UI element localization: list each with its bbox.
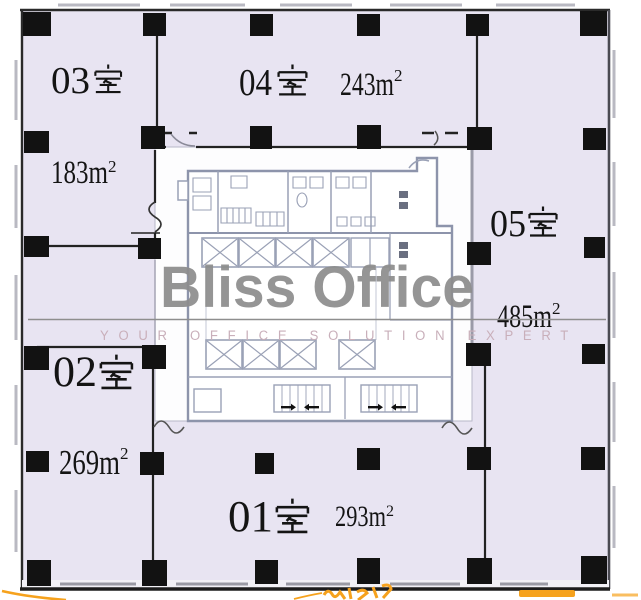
svg-text:02: 02 (53, 349, 97, 396)
svg-text:2: 2 (120, 444, 129, 463)
svg-text:03: 03 (51, 60, 90, 102)
svg-text:2: 2 (394, 66, 403, 85)
svg-text:183m: 183m (51, 155, 108, 191)
svg-text:YOUR OFFICE SOLUTION EXPERT: YOUR OFFICE SOLUTION EXPERT (100, 328, 578, 343)
svg-text:Bliss Office: Bliss Office (160, 255, 474, 320)
svg-text:2: 2 (386, 503, 394, 520)
svg-text:2: 2 (108, 157, 117, 176)
svg-text:04: 04 (239, 62, 272, 104)
svg-text:2: 2 (552, 299, 561, 318)
svg-text:05: 05 (490, 203, 526, 245)
svg-text:01: 01 (228, 492, 273, 541)
svg-text:293m: 293m (335, 500, 386, 533)
svg-text:269m: 269m (59, 443, 120, 482)
svg-text:243m: 243m (340, 67, 394, 103)
